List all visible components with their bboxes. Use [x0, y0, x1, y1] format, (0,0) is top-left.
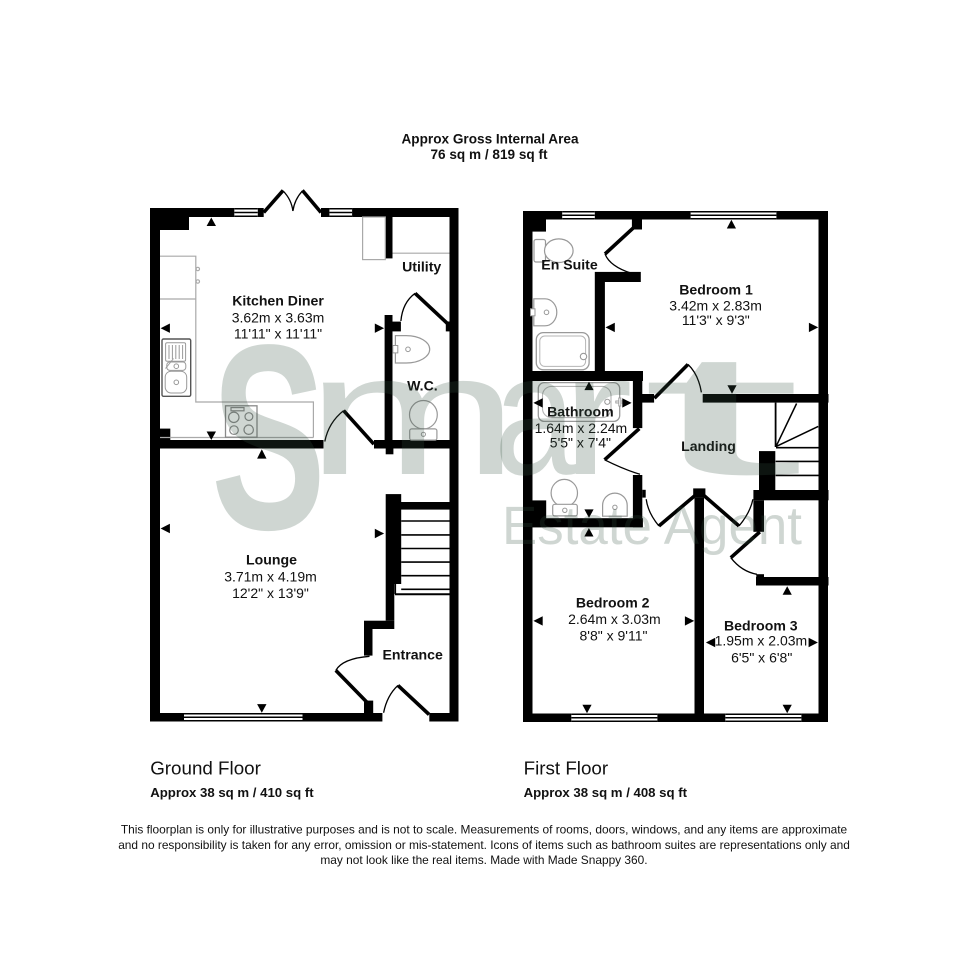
svg-text:Entrance: Entrance: [383, 647, 443, 663]
svg-text:1.95m x 2.03m: 1.95m x 2.03m: [715, 633, 808, 649]
svg-text:8'8" x 9'11": 8'8" x 9'11": [580, 628, 648, 644]
svg-text:Approx Gross Internal Area: Approx Gross Internal Area: [401, 132, 578, 147]
svg-text:Approx 38 sq m / 410 sq ft: Approx 38 sq m / 410 sq ft: [150, 785, 314, 800]
svg-text:2.64m x 3.03m: 2.64m x 3.03m: [568, 611, 661, 627]
svg-text:Utility: Utility: [402, 259, 441, 275]
svg-text:and no responsibility is taken: and no responsibility is taken for any e…: [118, 838, 850, 852]
svg-text:r: r: [561, 317, 633, 511]
svg-text:Approx 38 sq m / 408 sq ft: Approx 38 sq m / 408 sq ft: [524, 785, 688, 800]
svg-text:Ground Floor: Ground Floor: [150, 758, 261, 779]
svg-text:Bedroom 2: Bedroom 2: [576, 595, 650, 611]
svg-text:First Floor: First Floor: [524, 758, 609, 779]
svg-text:3.42m x 2.83m: 3.42m x 2.83m: [669, 298, 762, 314]
svg-text:76 sq m / 819 sq ft: 76 sq m / 819 sq ft: [430, 147, 548, 162]
svg-text:t: t: [640, 317, 803, 511]
svg-text:may not look like the real ite: may not look like the real items. Made w…: [320, 853, 647, 867]
svg-text:m: m: [306, 317, 519, 511]
svg-text:This floorplan is only for ill: This floorplan is only for illustrative …: [121, 823, 848, 837]
svg-text:Bedroom 1: Bedroom 1: [679, 281, 753, 297]
svg-text:Bedroom 3: Bedroom 3: [724, 618, 798, 634]
svg-text:Estate Agent: Estate Agent: [502, 496, 802, 556]
svg-text:En Suite: En Suite: [541, 256, 598, 272]
svg-text:12'2" x 13'9": 12'2" x 13'9": [232, 585, 309, 601]
svg-text:6'5" x 6'8": 6'5" x 6'8": [731, 649, 792, 665]
